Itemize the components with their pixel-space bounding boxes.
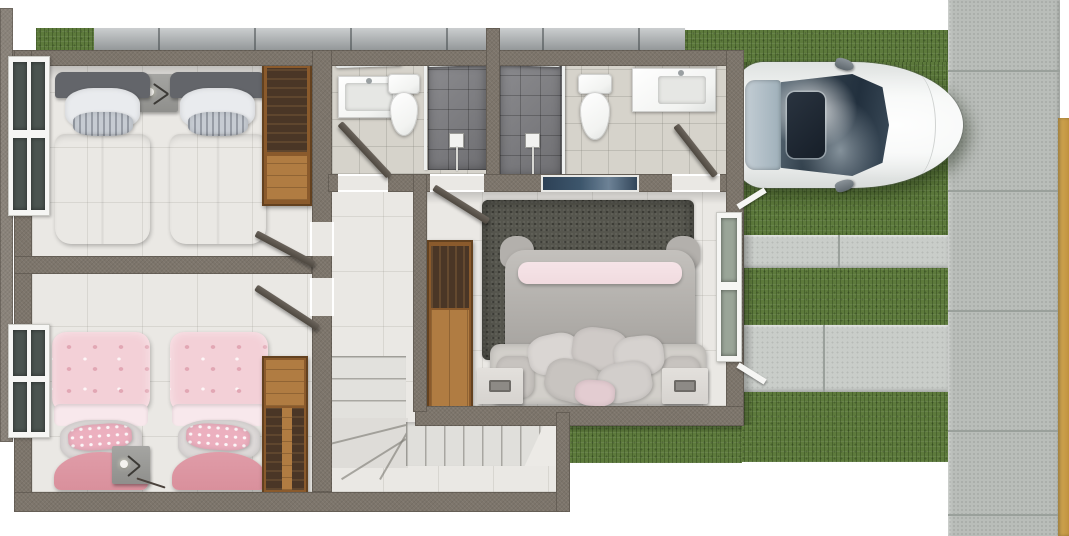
nightstand-pink-room: [112, 446, 150, 484]
faucet: [678, 70, 684, 76]
twin-bed-accent-pillow: [73, 112, 133, 136]
wardrobe-side-panel: [282, 408, 292, 490]
window-pane: [13, 330, 27, 376]
drawer-handle: [489, 380, 511, 392]
car-rear-window: [745, 80, 781, 170]
faucet: [366, 78, 372, 84]
window-pane: [13, 382, 27, 432]
window-pane: [721, 218, 737, 282]
floor-plan-scene: [0, 0, 1069, 536]
bathrooms-divider-wall: [486, 28, 500, 188]
master-pink-throw: [518, 262, 682, 284]
twin-bed-accent-pillow: [188, 112, 248, 136]
sidewalk-joint: [948, 310, 1060, 312]
wardrobe-upper: [267, 68, 307, 152]
window-pane: [31, 330, 45, 376]
sidewalk-joint: [948, 514, 1060, 516]
driveway-concrete-strip: [740, 325, 948, 392]
basin: [658, 76, 706, 104]
shower-glass-panel: [424, 64, 427, 170]
wardrobe-upper: [266, 360, 304, 406]
master-pillow-pink: [574, 379, 616, 408]
sidewalk-joint: [948, 430, 1060, 432]
wardrobe-gray-room: [262, 62, 312, 206]
window-pane: [721, 290, 737, 356]
master-nightstand-right: [662, 368, 708, 404]
shower-valve-left: [450, 134, 463, 147]
car-hood-line: [885, 70, 936, 180]
shower-right: [500, 64, 562, 176]
grass-tuft-topleft: [36, 28, 94, 52]
driveway-concrete-strip: [740, 235, 948, 268]
wardrobe-upper: [431, 246, 469, 308]
car-sunroof: [787, 92, 825, 158]
window-pane: [31, 382, 45, 432]
master-bottom-wall: [415, 406, 744, 426]
window-gray-bedroom: [8, 56, 50, 216]
window-pane: [13, 62, 27, 130]
door-opening: [338, 174, 388, 192]
strip-joint: [838, 235, 840, 268]
wardrobe-lower: [431, 310, 469, 406]
basin: [345, 83, 393, 111]
vanity-sink-right: [632, 68, 716, 112]
window-master-transom: [543, 177, 637, 190]
door-opening: [310, 278, 334, 316]
toilet-left-tank: [388, 74, 420, 94]
driveway-grass-strip: [740, 268, 948, 325]
bottom-exterior-wall: [14, 492, 570, 512]
drawer-handle: [674, 380, 696, 392]
shower-valve-right: [526, 134, 539, 147]
stair-landing-edge: [506, 422, 556, 466]
wardrobe-drawers: [267, 156, 307, 200]
wardrobe-pink-room: [262, 356, 308, 494]
window-pane: [31, 62, 45, 130]
strip-joint: [823, 325, 825, 392]
door-opening: [310, 222, 334, 256]
master-left-wall: [413, 174, 427, 412]
stair-upper-flight: [320, 356, 406, 422]
window-pane: [13, 138, 27, 210]
window-master-side: [716, 212, 742, 362]
shower-pipe-right: [532, 147, 534, 175]
top-exterior-wall: [12, 50, 744, 66]
window-pink-bedroom: [8, 324, 50, 438]
shower-glass-panel: [562, 64, 565, 176]
sidewalk-joint: [948, 70, 1060, 72]
bedroom-hall-wall: [312, 50, 332, 492]
shower-pipe-left: [456, 147, 458, 171]
bedrooms-divider-wall: [14, 256, 312, 274]
window-pane: [31, 138, 45, 210]
lamp-pink-room: [120, 460, 128, 468]
lawn-below-master: [568, 425, 742, 463]
curb-strip: [1058, 118, 1069, 536]
master-wardrobe: [427, 240, 473, 412]
pink-bed-duvet: [52, 332, 150, 412]
pink-bed-duvet: [170, 332, 268, 412]
driveway-grass-strip: [740, 392, 948, 462]
toilet-right-tank: [578, 74, 612, 94]
car: [735, 60, 963, 190]
master-nightstand-left: [477, 368, 523, 404]
stair-hall-right-wall: [556, 412, 570, 512]
sidewalk-joint: [948, 190, 1060, 192]
twin-bed-duvet: [55, 134, 150, 244]
sidewalk: [948, 0, 1060, 536]
twin-bed-duvet: [170, 134, 266, 244]
